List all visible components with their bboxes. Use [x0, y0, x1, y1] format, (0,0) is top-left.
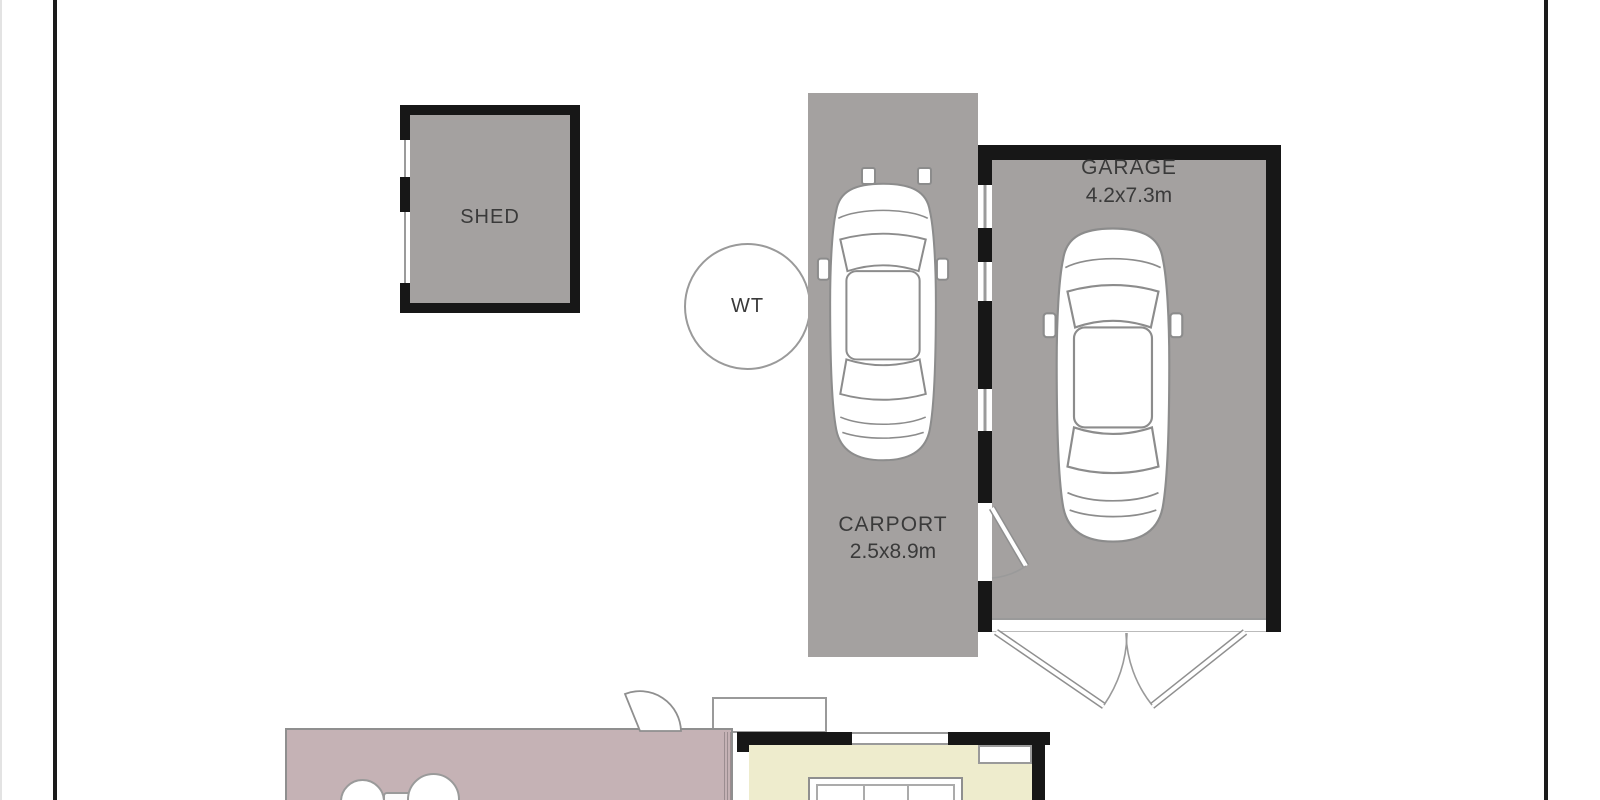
patio-deck-stripes — [722, 732, 733, 800]
water-tank: WT — [684, 243, 811, 370]
living-room-cabinet — [978, 745, 1032, 764]
boundary-line-left — [53, 0, 57, 800]
living-room-wall-east — [1032, 745, 1045, 800]
garage-label: GARAGE — [992, 156, 1266, 180]
garage-door-opening — [992, 618, 1266, 632]
garage-wall-west — [978, 431, 992, 503]
carport-floor — [808, 93, 978, 657]
carport-dimensions: 2.5x8.9m — [808, 540, 978, 564]
garage-wall-west — [978, 145, 992, 185]
garage-floor — [992, 160, 1266, 618]
bay-window-frame — [816, 784, 955, 800]
living-room-bay-window — [808, 777, 963, 800]
living-room-window-icon — [852, 732, 948, 745]
shed-window-icon — [400, 212, 410, 283]
garage-wall-west — [978, 581, 992, 632]
floor-plan-page: SHED WT CARPORT 2.5x8.9m GARAGE 4.2x7.3m — [0, 0, 1600, 800]
garage-wall-west — [978, 301, 992, 389]
page-left-edge-line — [0, 0, 2, 800]
garage-window-icon — [978, 389, 992, 431]
garage-wall-west — [978, 228, 992, 262]
door-swing-icon — [625, 691, 681, 731]
bay-window-mullion — [863, 786, 865, 800]
shed-label: SHED — [410, 206, 570, 229]
garage-side-door-opening — [978, 503, 992, 581]
living-room-door-opening — [737, 752, 749, 800]
water-tank-label: WT — [731, 295, 764, 318]
garage-wall-east — [1266, 145, 1281, 632]
plan-linework — [0, 0, 1600, 800]
garage-window-icon — [978, 262, 992, 301]
boundary-line-right — [1544, 0, 1548, 800]
garage-double-door-icon — [996, 632, 1245, 706]
bay-window-mullion — [907, 786, 909, 800]
carport-label: CARPORT — [808, 513, 978, 537]
shed-window-icon — [400, 140, 410, 177]
garage-window-icon — [978, 185, 992, 228]
garage-dimensions: 4.2x7.3m — [992, 184, 1266, 208]
